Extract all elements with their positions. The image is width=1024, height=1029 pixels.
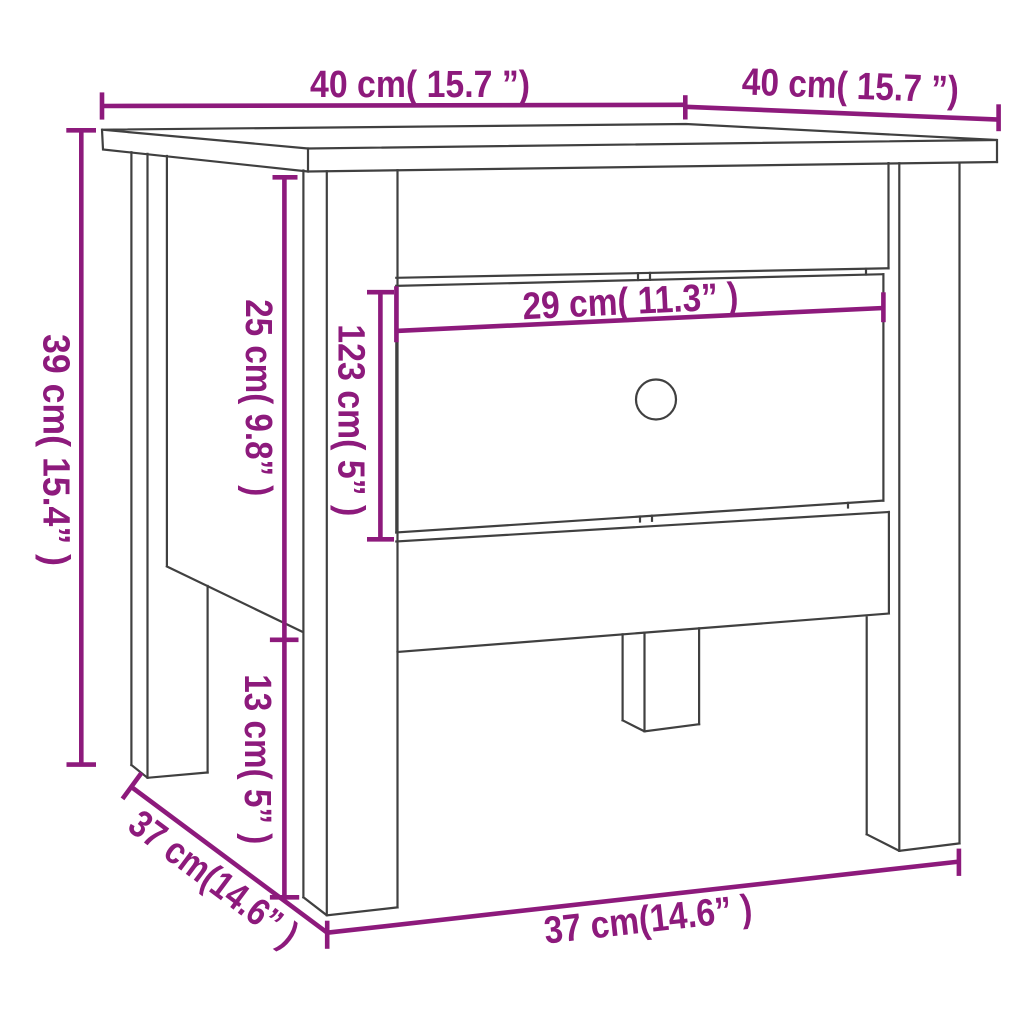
svg-text:13 cm( 5” ): 13 cm( 5” ) bbox=[236, 674, 279, 844]
svg-text:40 cm( 15.7 ”): 40 cm( 15.7 ”) bbox=[741, 60, 959, 111]
svg-text:25 cm( 9.8” ): 25 cm( 9.8” ) bbox=[237, 299, 280, 496]
svg-text:40 cm( 15.7 ”): 40 cm( 15.7 ”) bbox=[310, 63, 530, 106]
svg-text:123 cm( 5” ): 123 cm( 5” ) bbox=[330, 324, 373, 516]
svg-text:39 cm( 15.4” ): 39 cm( 15.4” ) bbox=[35, 334, 78, 566]
